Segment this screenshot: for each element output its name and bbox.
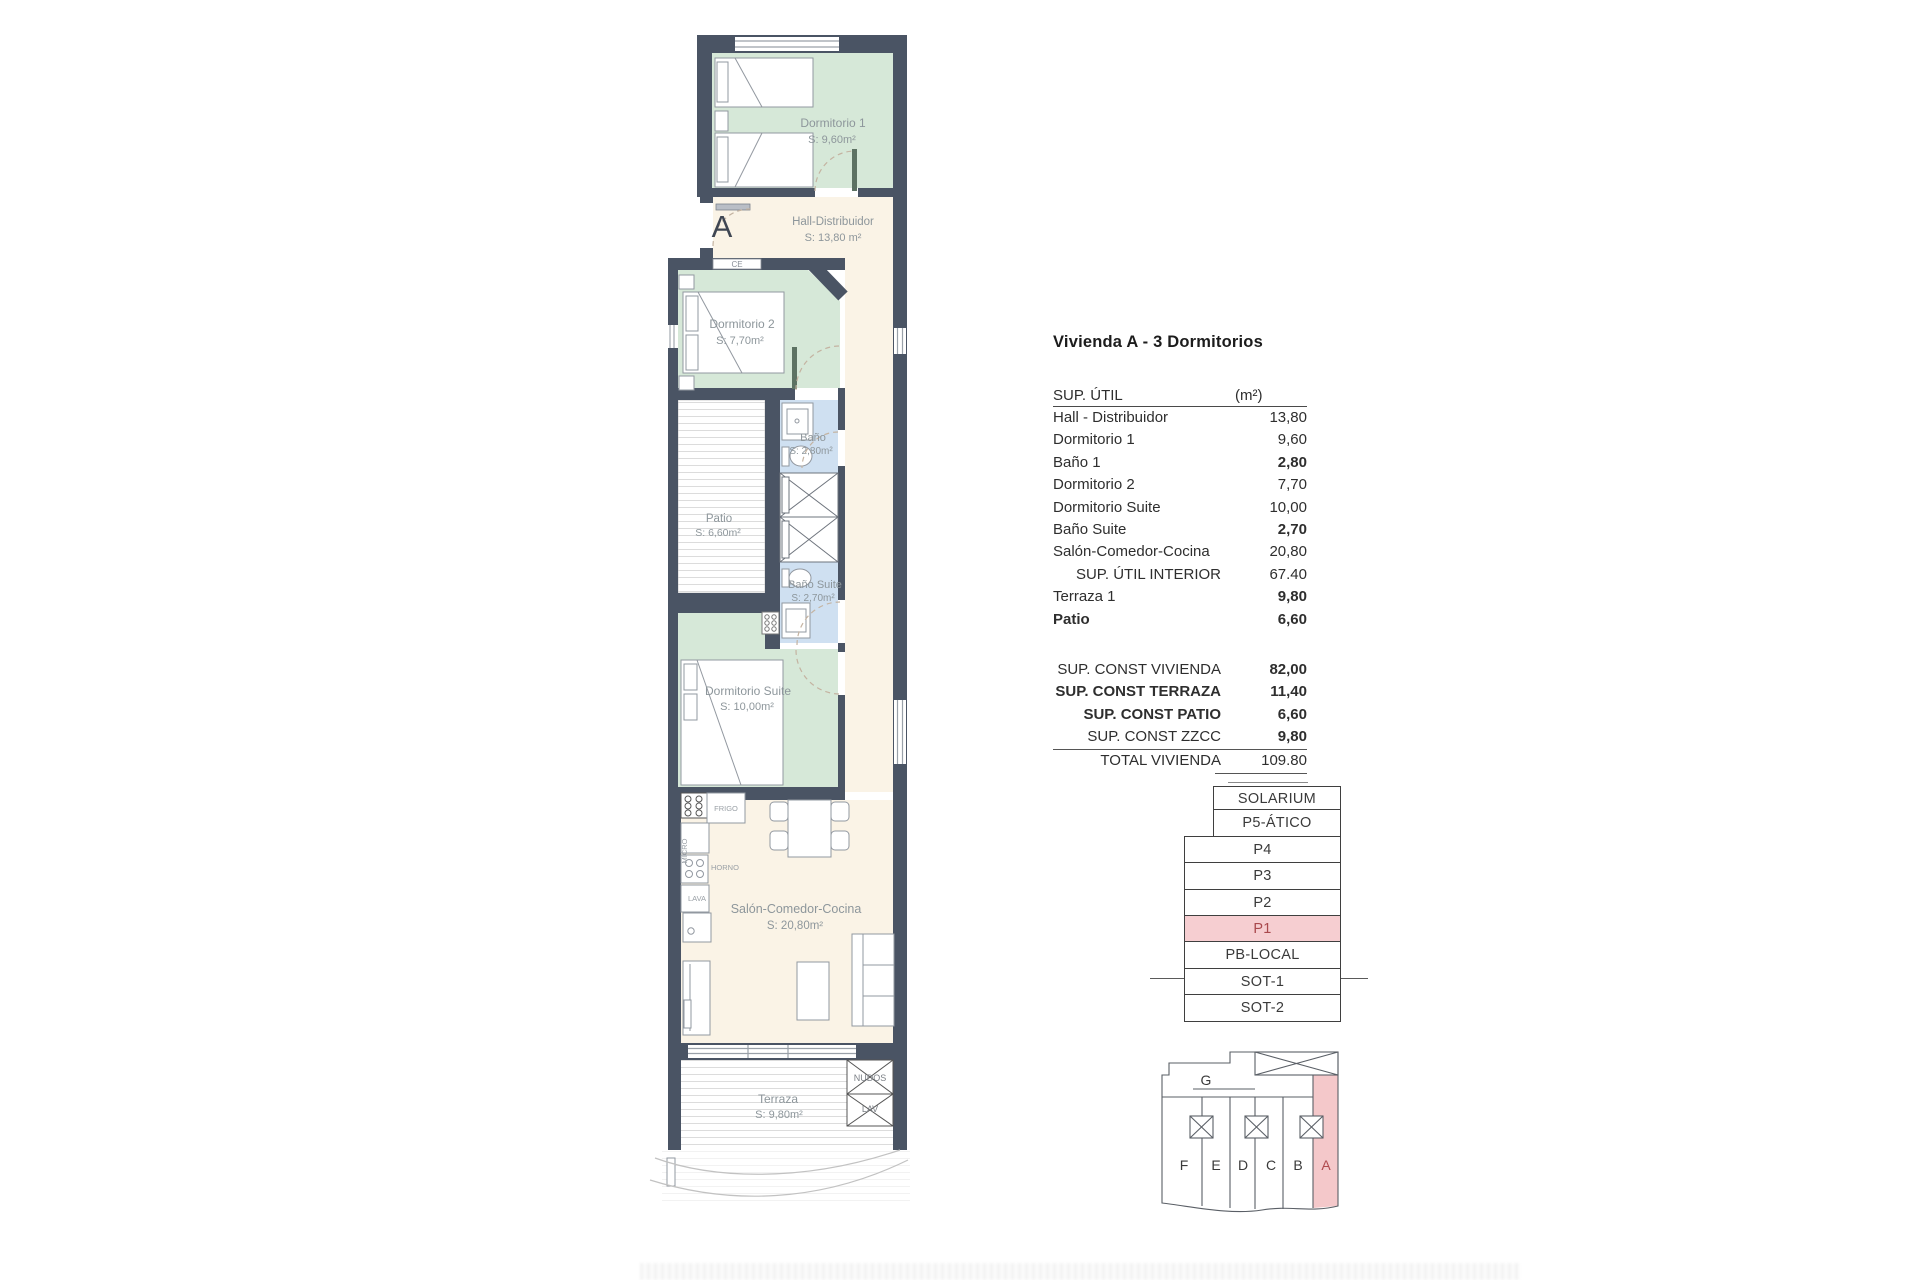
- double-bed-icon: [679, 275, 784, 390]
- sink-icon: [782, 603, 810, 638]
- row-label: SUP. ÚTIL INTERIOR: [1053, 564, 1235, 586]
- key-unit-c: C: [1266, 1157, 1276, 1173]
- stack-level-p1-highlighted: P1: [1184, 915, 1341, 943]
- util-header-label: SUP. ÚTIL: [1053, 385, 1235, 406]
- row-label: Dormitorio 1: [1053, 429, 1235, 451]
- row-value: 7,70: [1235, 474, 1307, 496]
- row-value: 82,00: [1235, 659, 1307, 681]
- table-row: Baño Suite2,70: [1053, 519, 1307, 541]
- stack-level-sot-2: SOT-2: [1184, 994, 1341, 1022]
- room-area: S: 7,70m²: [716, 335, 764, 347]
- const-panel: SUP. CONST VIVIENDA82,00 SUP. CONST TERR…: [1053, 659, 1307, 774]
- table-row: SUP. CONST VIVIENDA82,00: [1053, 659, 1307, 681]
- oven-label: HORNO: [711, 863, 739, 872]
- row-value: 6,60: [1235, 704, 1307, 726]
- room-label: Terraza: [758, 1092, 798, 1106]
- table-row: Hall - Distribuidor13,80: [1053, 407, 1307, 429]
- row-label: SUP. CONST TERRAZA: [1053, 681, 1235, 703]
- row-value: 9,80: [1235, 726, 1307, 748]
- room-label: Dormitorio Suite: [705, 684, 791, 698]
- total-underline: [1215, 773, 1307, 774]
- table-row: SUP. CONST PATIO6,60: [1053, 704, 1307, 726]
- table-row: SUP. CONST TERRAZA11,40: [1053, 681, 1307, 703]
- tv-unit-icon: [684, 1000, 691, 1028]
- row-label: Hall - Distribuidor: [1053, 407, 1235, 429]
- row-label: Dormitorio Suite: [1053, 497, 1235, 519]
- row-value: 20,80: [1235, 541, 1307, 563]
- table-row: Dormitorio Suite10,00: [1053, 497, 1307, 519]
- row-label: Dormitorio 2: [1053, 474, 1235, 496]
- row-label: Patio: [1053, 609, 1235, 631]
- room-area: S: 2,70m²: [791, 593, 835, 604]
- entrance-letter: A: [712, 209, 733, 244]
- door-gap-suite: [838, 652, 845, 695]
- room-area: S: 9,80m²: [755, 1109, 803, 1121]
- row-label: SUP. CONST PATIO: [1053, 704, 1235, 726]
- table-row: Dormitorio 27,70: [1053, 474, 1307, 496]
- row-label: SUP. CONST ZZCC: [1053, 726, 1235, 748]
- key-plan-unit-a-highlight: [1313, 1075, 1338, 1208]
- water-heater-icon: [762, 612, 779, 634]
- row-value: 11,40: [1235, 681, 1307, 703]
- row-value: 2,70: [1235, 519, 1307, 541]
- room-area: S: 20,80m²: [767, 920, 823, 932]
- terrace-apron: [662, 1148, 910, 1206]
- key-plan: G F E D C B A: [1162, 1052, 1338, 1212]
- corridor: [845, 258, 893, 792]
- row-label: Salón-Comedor-Cocina: [1053, 541, 1235, 563]
- room-label: Dormitorio 1: [800, 116, 866, 130]
- row-value: 10,00: [1235, 497, 1307, 519]
- row-value: 9,60: [1235, 429, 1307, 451]
- table-row: SUP. CONST ZZCC9,80: [1053, 726, 1307, 748]
- table-row: Patio6,60: [1053, 609, 1307, 631]
- row-label: Baño 1: [1053, 452, 1235, 474]
- wardrobe-icon: [780, 473, 838, 517]
- stack-roof-line: [1228, 782, 1308, 783]
- double-bed-icon: [681, 660, 783, 785]
- row-label: Terraza 1: [1053, 586, 1235, 608]
- room-area: S: 10,00m²: [720, 701, 774, 713]
- util-table-header: SUP. ÚTIL (m²): [1053, 385, 1307, 407]
- row-value: 2,80: [1235, 452, 1307, 474]
- table-row: Baño 12,80: [1053, 452, 1307, 474]
- single-bed-icon: [715, 58, 813, 107]
- door-gap-dormitorio1: [815, 188, 858, 197]
- summary-panel: Vivienda A - 3 Dormitorios SUP. ÚTIL (m²…: [1053, 333, 1307, 631]
- table-row: Terraza 19,80: [1053, 586, 1307, 608]
- floor-stack: SOLARIUM P5-ÁTICO P4 P3 P2 P1 PB-LOCAL S…: [1184, 786, 1341, 1022]
- key-unit-a: A: [1321, 1157, 1331, 1173]
- table-row-total: TOTAL VIVIENDA109.80: [1053, 749, 1307, 772]
- terrace-closet-icon: [847, 1060, 893, 1126]
- key-unit-b: B: [1293, 1157, 1302, 1173]
- room-area: S: 6,60m²: [695, 527, 741, 539]
- table-row: Salón-Comedor-Cocina20,80: [1053, 541, 1307, 563]
- nightstand-icon: [715, 111, 728, 131]
- room-area: S: 9,60m²: [808, 134, 856, 146]
- door-gap-dormitorio2: [795, 388, 838, 400]
- table-row: Dormitorio 19,60: [1053, 429, 1307, 451]
- row-value: 6,60: [1235, 609, 1307, 631]
- stack-level-pb-local: PB-LOCAL: [1184, 941, 1341, 969]
- page-title: Vivienda A - 3 Dormitorios: [1053, 333, 1307, 352]
- room-label: Patio: [706, 513, 732, 525]
- ce-label: CE: [731, 260, 742, 269]
- stack-level-p3: P3: [1184, 862, 1341, 890]
- total-value: 109.80: [1235, 750, 1307, 772]
- fridge-label: FRIGO: [714, 804, 738, 813]
- page: Dormitorio 1 S: 9,60m² Hall-Distribuidor…: [0, 0, 1920, 1280]
- room-label: Baño Suite: [788, 579, 842, 591]
- single-bed-icon: [715, 133, 813, 187]
- util-header-unit: (m²): [1235, 385, 1307, 406]
- stack-level-solarium: SOLARIUM: [1213, 786, 1341, 811]
- key-unit-f: F: [1180, 1157, 1189, 1173]
- row-value: 67.40: [1235, 564, 1307, 586]
- terrace-closet-label: LAV: [862, 1104, 878, 1114]
- room-area: S: 13,80 m²: [805, 232, 862, 244]
- table-row-subtotal: SUP. ÚTIL INTERIOR67.40: [1053, 564, 1307, 586]
- washer-label: LAVA: [688, 894, 706, 903]
- stack-level-sot-1: SOT-1: [1184, 968, 1341, 996]
- row-value: 9,80: [1235, 586, 1307, 608]
- row-label: SUP. CONST VIVIENDA: [1053, 659, 1235, 681]
- room-label: Hall-Distribuidor: [792, 216, 874, 228]
- door-leaf: [792, 347, 797, 389]
- key-unit-e: E: [1211, 1157, 1220, 1173]
- row-value: 13,80: [1235, 407, 1307, 429]
- sofa-icon: [852, 934, 894, 1026]
- door-leaf: [852, 149, 857, 191]
- row-label: Baño Suite: [1053, 519, 1235, 541]
- coffee-table-icon: [797, 962, 829, 1020]
- key-unit-d: D: [1238, 1157, 1248, 1173]
- room-label: Salón-Comedor-Cocina: [731, 902, 862, 916]
- stack-level-p5-atico: P5-ÁTICO: [1213, 809, 1341, 837]
- kitchen-sink-icon: [683, 913, 711, 942]
- room-label: Baño: [800, 432, 826, 444]
- stack-level-p2: P2: [1184, 889, 1341, 917]
- floor-plan-drawing: Dormitorio 1 S: 9,60m² Hall-Distribuidor…: [0, 0, 1920, 1280]
- door-gap-bano-suite: [838, 600, 845, 643]
- room-area: S: 2,80m²: [789, 446, 833, 457]
- stack-level-p4: P4: [1184, 836, 1341, 864]
- door-gap-bano1: [838, 430, 845, 466]
- room-label: Dormitorio 2: [709, 317, 775, 331]
- microwave-label: MICRO: [680, 838, 689, 863]
- wardrobe-icon: [780, 517, 838, 562]
- key-unit-g: G: [1201, 1072, 1212, 1088]
- hob-icon: [681, 793, 708, 818]
- terrace-closet-label: NUDOS: [854, 1073, 887, 1083]
- total-label: TOTAL VIVIENDA: [1053, 750, 1235, 772]
- cutoff-scale-strip: [640, 1263, 1520, 1280]
- room-patio: [678, 400, 765, 593]
